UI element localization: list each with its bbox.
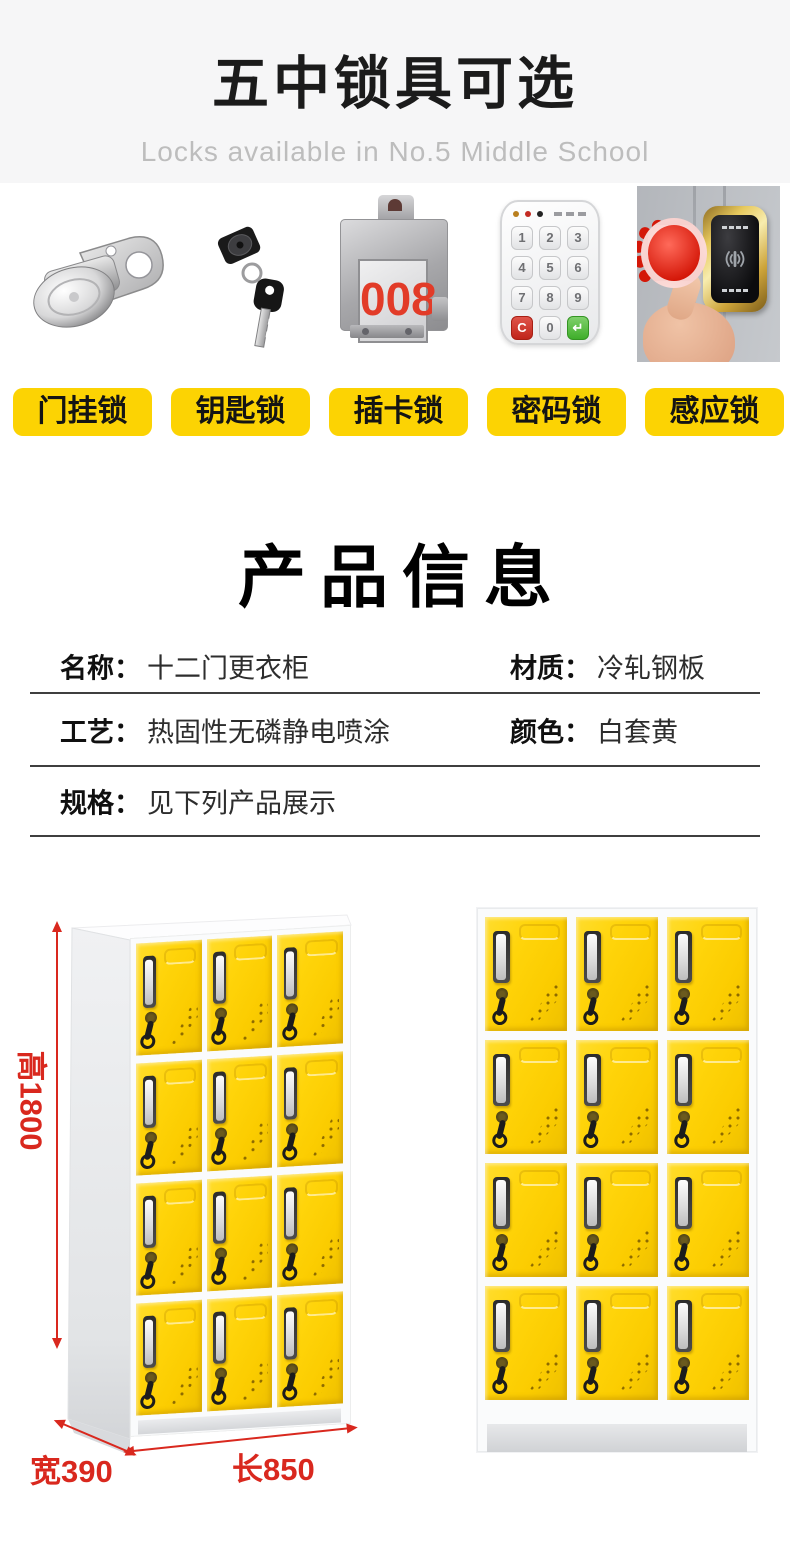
locker-perspective-view bbox=[48, 903, 368, 1463]
locker-plinth bbox=[487, 1424, 747, 1452]
door-key bbox=[215, 1257, 225, 1277]
door-handle-inner bbox=[145, 1079, 153, 1125]
left-locker-door-grid bbox=[136, 931, 343, 1415]
door-key bbox=[215, 1137, 225, 1157]
door-handle-slot bbox=[493, 1054, 509, 1106]
door-emboss bbox=[234, 1063, 267, 1081]
door-emboss bbox=[701, 924, 741, 941]
door-emboss bbox=[701, 1170, 741, 1187]
locker-front-view bbox=[477, 908, 757, 1452]
height-dimension-label: 高1800 bbox=[12, 1041, 57, 1161]
lock-types-row: 008 123456789C0↵ bbox=[0, 183, 790, 380]
door-vent-holes bbox=[241, 1121, 269, 1163]
door-emboss bbox=[164, 1067, 197, 1085]
door-emboss bbox=[610, 1170, 650, 1187]
door-handle-inner bbox=[216, 955, 224, 1001]
locker-door bbox=[576, 1163, 658, 1277]
door-key bbox=[285, 1372, 295, 1392]
door-handle-inner bbox=[216, 1315, 224, 1361]
locker-door bbox=[136, 1060, 202, 1176]
door-handle-slot bbox=[584, 1300, 600, 1352]
door-key bbox=[495, 1365, 505, 1385]
signal-icon bbox=[720, 245, 750, 273]
keypad-key-4: 4 bbox=[511, 256, 533, 280]
rfid-fob bbox=[641, 218, 707, 288]
locker-door bbox=[485, 1163, 567, 1277]
door-emboss bbox=[234, 1303, 267, 1321]
door-key bbox=[677, 1365, 687, 1385]
door-vent-holes bbox=[170, 1005, 198, 1047]
door-emboss bbox=[701, 1047, 741, 1064]
door-handle-slot bbox=[493, 1177, 509, 1229]
door-key bbox=[285, 1252, 295, 1272]
card-lock-base bbox=[350, 325, 424, 338]
page-title: 五中锁具可选 bbox=[0, 0, 790, 120]
right-locker-door-grid bbox=[485, 917, 749, 1400]
door-emboss bbox=[305, 938, 338, 956]
door-handle-slot bbox=[284, 948, 297, 1000]
door-handle-inner bbox=[145, 1319, 153, 1365]
spec-color: 颜色： 白套黄 bbox=[510, 710, 678, 749]
door-handle-inner bbox=[587, 1303, 597, 1349]
door-handle-slot bbox=[493, 1300, 509, 1352]
door-emboss bbox=[610, 1047, 650, 1064]
door-vent-holes bbox=[619, 1352, 653, 1393]
keypad-lock-icon: 123456789C0↵ bbox=[500, 200, 600, 345]
locker-door bbox=[485, 1040, 567, 1154]
locker-door bbox=[277, 1051, 343, 1167]
door-handle-inner bbox=[678, 1303, 688, 1349]
door-vent-holes bbox=[528, 1352, 562, 1393]
door-handle-slot bbox=[584, 1177, 600, 1229]
locker-door bbox=[136, 940, 202, 1056]
door-emboss bbox=[164, 1307, 197, 1325]
door-vent-holes bbox=[311, 1117, 339, 1159]
keypad-indicator-lights bbox=[513, 211, 543, 217]
door-vent-holes bbox=[528, 1106, 562, 1147]
door-handle-slot bbox=[584, 1054, 600, 1106]
door-handle-inner bbox=[286, 1071, 294, 1117]
door-emboss bbox=[164, 947, 197, 965]
door-emboss bbox=[234, 1183, 267, 1201]
locker-door bbox=[667, 917, 749, 1031]
spec-row: 名称： 十二门更衣柜 材质： 冷轧钢板 bbox=[30, 640, 760, 694]
door-vent-holes bbox=[311, 1237, 339, 1279]
door-vent-holes bbox=[710, 1352, 744, 1393]
keypad-micro-text bbox=[554, 212, 588, 216]
door-handle-inner bbox=[216, 1195, 224, 1241]
keypad-key-0: 0 bbox=[539, 316, 561, 340]
spec-row: 规格： 见下列产品展示 bbox=[30, 767, 760, 837]
door-handle-inner bbox=[678, 1180, 688, 1226]
locker-door bbox=[277, 931, 343, 1047]
door-vent-holes bbox=[170, 1365, 198, 1407]
door-handle-slot bbox=[675, 931, 691, 983]
door-handle-inner bbox=[145, 959, 153, 1005]
header-section: 五中锁具可选 Locks available in No.5 Middle Sc… bbox=[0, 0, 790, 183]
card-lock-body: 008 bbox=[340, 219, 448, 331]
locker-door bbox=[207, 1176, 273, 1292]
locker-door bbox=[207, 1296, 273, 1412]
card-lock-knob bbox=[432, 297, 448, 321]
product-detail-page: 五中锁具可选 Locks available in No.5 Middle Sc… bbox=[0, 0, 790, 1567]
keypad-key-3: 3 bbox=[567, 226, 589, 250]
door-key bbox=[144, 1141, 154, 1161]
door-key bbox=[586, 1365, 596, 1385]
door-handle-slot bbox=[143, 1316, 156, 1368]
keypad-keys: 123456789C0↵ bbox=[511, 226, 589, 340]
door-emboss bbox=[519, 1170, 559, 1187]
door-handle-slot bbox=[675, 1177, 691, 1229]
door-vent-holes bbox=[710, 1106, 744, 1147]
lock-type-tag-card: 插卡锁 bbox=[329, 388, 468, 436]
door-handle-inner bbox=[286, 1191, 294, 1237]
locker-door bbox=[576, 1286, 658, 1400]
door-key bbox=[215, 1377, 225, 1397]
door-vent-holes bbox=[311, 997, 339, 1039]
cam-lock-icon bbox=[16, 223, 170, 345]
locker-door bbox=[576, 1040, 658, 1154]
door-key bbox=[144, 1381, 154, 1401]
rfid-lock-icon bbox=[703, 206, 767, 312]
door-emboss bbox=[519, 1047, 559, 1064]
door-handle-inner bbox=[286, 1311, 294, 1357]
keypad-key-5: 5 bbox=[539, 256, 561, 280]
door-vent-holes bbox=[619, 1106, 653, 1147]
door-emboss bbox=[305, 1058, 338, 1076]
door-key bbox=[144, 1261, 154, 1281]
section-title-product-info: 产品信息 bbox=[0, 522, 790, 621]
door-vent-holes bbox=[710, 1229, 744, 1270]
door-handle-slot bbox=[143, 956, 156, 1008]
spec-row: 工艺： 热固性无磷静电喷涂 颜色： 白套黄 bbox=[30, 694, 760, 767]
door-vent-holes bbox=[619, 1229, 653, 1270]
keypad-key-9: 9 bbox=[567, 286, 589, 310]
locker-door bbox=[207, 1056, 273, 1172]
locker-door bbox=[667, 1163, 749, 1277]
door-handle-slot bbox=[493, 931, 509, 983]
door-emboss bbox=[519, 1293, 559, 1310]
locker-door bbox=[277, 1291, 343, 1407]
locker-door bbox=[277, 1171, 343, 1287]
door-vent-holes bbox=[528, 1229, 562, 1270]
locker-door bbox=[667, 1040, 749, 1154]
door-handle-inner bbox=[678, 1057, 688, 1103]
door-handle-slot bbox=[143, 1076, 156, 1128]
door-key bbox=[495, 996, 505, 1016]
keypad-key-↵: ↵ bbox=[567, 316, 589, 340]
door-handle-slot bbox=[143, 1196, 156, 1248]
door-vent-holes bbox=[170, 1125, 198, 1167]
keypad-key-6: 6 bbox=[567, 256, 589, 280]
locker-door bbox=[136, 1180, 202, 1296]
lock-type-tag-rfid: 感应锁 bbox=[645, 388, 784, 436]
locker-door bbox=[485, 917, 567, 1031]
door-handle-slot bbox=[213, 1312, 226, 1364]
door-key bbox=[677, 1242, 687, 1262]
door-vent-holes bbox=[241, 1241, 269, 1283]
door-handle-inner bbox=[216, 1075, 224, 1121]
door-handle-inner bbox=[678, 934, 688, 980]
depth-dimension-label: 宽390 bbox=[30, 1446, 113, 1491]
door-handle-inner bbox=[496, 934, 506, 980]
door-handle-inner bbox=[587, 934, 597, 980]
door-handle-inner bbox=[587, 1057, 597, 1103]
key-lock-icon bbox=[200, 221, 300, 353]
door-handle-inner bbox=[286, 951, 294, 997]
door-key bbox=[677, 1119, 687, 1139]
door-key bbox=[586, 1119, 596, 1139]
locker-door bbox=[207, 936, 273, 1052]
lock-type-tag-padlock: 门挂锁 bbox=[13, 388, 152, 436]
door-key bbox=[285, 1012, 295, 1032]
locker-door bbox=[136, 1300, 202, 1416]
door-key bbox=[586, 996, 596, 1016]
spec-table: 名称： 十二门更衣柜 材质： 冷轧钢板 工艺： 热固性无磷静电喷涂 颜色： 白套… bbox=[30, 640, 760, 837]
door-emboss bbox=[519, 924, 559, 941]
door-emboss bbox=[305, 1298, 338, 1316]
door-emboss bbox=[164, 1187, 197, 1205]
card-lock-icon: 008 bbox=[338, 195, 458, 343]
door-handle-slot bbox=[675, 1300, 691, 1352]
spec-name: 名称： 十二门更衣柜 bbox=[60, 647, 309, 686]
door-vent-holes bbox=[241, 1361, 269, 1403]
door-handle-inner bbox=[496, 1057, 506, 1103]
door-vent-holes bbox=[619, 983, 653, 1024]
length-dimension-label: 长850 bbox=[232, 1444, 315, 1489]
rfid-lock-panel bbox=[711, 215, 759, 303]
door-key bbox=[677, 996, 687, 1016]
door-handle-slot bbox=[213, 1192, 226, 1244]
door-handle-slot bbox=[284, 1308, 297, 1360]
door-handle-slot bbox=[584, 931, 600, 983]
door-handle-inner bbox=[145, 1199, 153, 1245]
door-handle-slot bbox=[213, 1072, 226, 1124]
locker-door bbox=[667, 1286, 749, 1400]
door-emboss bbox=[701, 1293, 741, 1310]
door-key bbox=[144, 1021, 154, 1041]
locker-front-face bbox=[130, 925, 351, 1437]
keypad-key-2: 2 bbox=[539, 226, 561, 250]
keypad-key-1: 1 bbox=[511, 226, 533, 250]
door-vent-holes bbox=[710, 983, 744, 1024]
door-handle-slot bbox=[213, 952, 226, 1004]
door-key bbox=[215, 1017, 225, 1037]
door-key bbox=[495, 1242, 505, 1262]
door-key bbox=[495, 1119, 505, 1139]
page-subtitle: Locks available in No.5 Middle School bbox=[0, 136, 790, 168]
door-handle-inner bbox=[587, 1180, 597, 1226]
keypad-key-8: 8 bbox=[539, 286, 561, 310]
door-handle-inner bbox=[496, 1180, 506, 1226]
door-emboss bbox=[234, 943, 267, 961]
door-vent-holes bbox=[170, 1245, 198, 1287]
rfid-lock-photo bbox=[637, 186, 780, 362]
door-vent-holes bbox=[241, 1001, 269, 1043]
door-key bbox=[285, 1132, 295, 1152]
lock-type-tag-password: 密码锁 bbox=[487, 388, 626, 436]
spec-size: 规格： 见下列产品展示 bbox=[60, 782, 336, 821]
door-handle-slot bbox=[284, 1068, 297, 1120]
locker-door bbox=[485, 1286, 567, 1400]
spec-process: 工艺： 热固性无磷静电喷涂 bbox=[60, 710, 390, 749]
spec-material: 材质： 冷轧钢板 bbox=[510, 647, 705, 686]
keypad-key-7: 7 bbox=[511, 286, 533, 310]
door-handle-inner bbox=[496, 1303, 506, 1349]
keypad-key-C: C bbox=[511, 316, 533, 340]
door-emboss bbox=[610, 1293, 650, 1310]
locker-door bbox=[576, 917, 658, 1031]
lock-type-tag-key: 钥匙锁 bbox=[171, 388, 310, 436]
door-vent-holes bbox=[528, 983, 562, 1024]
door-emboss bbox=[610, 924, 650, 941]
door-vent-holes bbox=[311, 1357, 339, 1399]
door-handle-slot bbox=[284, 1188, 297, 1240]
door-handle-slot bbox=[675, 1054, 691, 1106]
door-key bbox=[586, 1242, 596, 1262]
door-emboss bbox=[305, 1178, 338, 1196]
